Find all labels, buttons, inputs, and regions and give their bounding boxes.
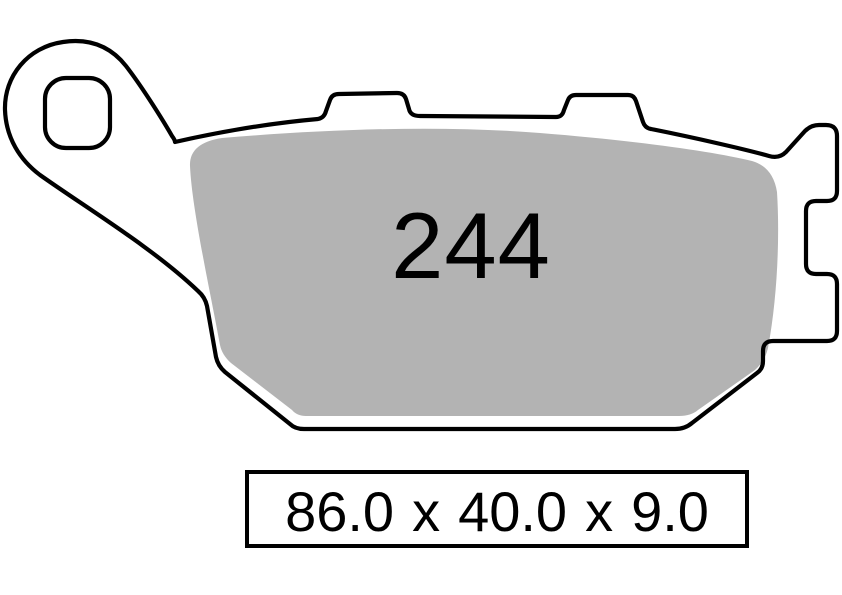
part-number-label: 244 [391,199,551,293]
dimensions-box: 86.0 x 40.0 x 9.0 [245,470,749,548]
dimension-separator: x [585,484,613,540]
dimension-height: 40.0 [458,484,567,540]
dimension-thickness: 9.0 [631,484,709,540]
brake-pad-diagram: 244 86.0 x 40.0 x 9.0 [0,0,842,595]
dimension-width: 86.0 [285,484,394,540]
dimension-separator: x [412,484,440,540]
mounting-hole [45,78,110,148]
